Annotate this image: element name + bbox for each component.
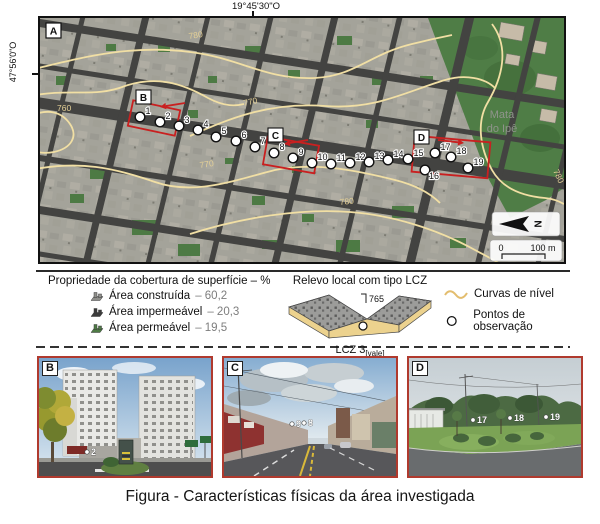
- observation-point: [383, 155, 393, 165]
- legend-relief-title: Relevo local com tipo LCZ: [281, 275, 439, 287]
- observation-point: [135, 112, 145, 122]
- observation-point-label: 14: [394, 149, 404, 159]
- photo-point: [544, 415, 548, 419]
- photo-d: 171819 D: [407, 356, 583, 478]
- legend-item-value: – 19,5: [195, 322, 227, 335]
- elevation-tick: [361, 294, 366, 303]
- observation-point-label: 10: [318, 152, 328, 162]
- legend-points-row: Pontos de observação: [444, 309, 584, 333]
- observation-point: [345, 158, 355, 168]
- photo-point: [471, 418, 475, 422]
- legend-contour-label: Curvas de nível: [474, 288, 554, 300]
- area-block-icon: [90, 323, 104, 334]
- contour-label: 780: [339, 196, 354, 207]
- observation-point: [231, 136, 241, 146]
- observation-point: [288, 153, 298, 163]
- photo-point-label: 9: [296, 419, 301, 429]
- photo-point: [85, 450, 89, 454]
- legend-surface-cover: Propriedade da cobertura de superfície –…: [40, 275, 286, 335]
- legend-item-label: Área impermeável: [109, 306, 202, 319]
- legend-symbols: Curvas de nível Pontos de observação: [444, 288, 584, 342]
- observation-point: [250, 142, 260, 152]
- photo-point-label: 17: [477, 415, 487, 425]
- photo-b-chip: B: [42, 361, 58, 376]
- legend-item-2: Área permeável– 19,5: [90, 322, 286, 335]
- inset-box-letter: B: [140, 93, 147, 104]
- observation-point: [193, 125, 203, 135]
- inset-box-letter: C: [272, 131, 279, 142]
- observation-point-icon: [444, 315, 467, 327]
- legend-relief: Relevo local com tipo LCZ 765 LCZ 3[vale…: [281, 275, 439, 358]
- photo-point: [508, 416, 512, 420]
- forest-label-line1: Mata: [490, 109, 515, 121]
- observation-point-label: 8: [280, 142, 285, 152]
- photo-point: [302, 421, 306, 425]
- observation-point: [446, 152, 456, 162]
- coordinate-left-label: 47°56'0"O: [8, 42, 18, 83]
- observation-point-label: 5: [222, 126, 227, 136]
- scale-start: 0: [498, 243, 503, 253]
- photo-point-label: 19: [550, 412, 560, 422]
- observation-point: [174, 121, 184, 131]
- observation-point-label: 15: [414, 148, 424, 158]
- observation-point-label: 1: [146, 106, 151, 116]
- observation-point-label: 6: [242, 130, 247, 140]
- north-arrow: N: [492, 212, 560, 236]
- photo-b: 2 B: [37, 356, 213, 478]
- observation-point: [155, 117, 165, 127]
- observation-point: [430, 148, 440, 158]
- building-left: [409, 408, 445, 430]
- photo-c-scene: 98: [224, 358, 396, 476]
- north-letter: N: [531, 220, 542, 227]
- observation-point: [364, 157, 374, 167]
- observation-point-label: 7: [261, 136, 266, 146]
- observation-point-label: 2: [166, 111, 171, 121]
- scale-end: 100 m: [530, 243, 555, 253]
- observation-point-label: 4: [204, 119, 209, 129]
- scale-bar: 0 100 m: [490, 240, 562, 261]
- observation-point: [403, 154, 413, 164]
- photo-point-label: 2: [91, 447, 96, 457]
- photo-d-scene: 171819: [409, 358, 581, 476]
- inset-box-letter: D: [418, 133, 425, 144]
- contour-label: 770: [199, 158, 215, 170]
- satellite-map: 780770760770780780 Mata do Ipê BCD 12345…: [40, 18, 564, 262]
- photo-d-chip: D: [412, 361, 428, 376]
- observation-point: [463, 163, 473, 173]
- legend-contour-row: Curvas de nível: [444, 288, 584, 300]
- legend-item-label: Área construída: [109, 290, 190, 303]
- legend-surface-title: Propriedade da cobertura de superfície –…: [40, 275, 286, 287]
- area-block-icon: [90, 291, 104, 302]
- legend-item-label: Área permeável: [109, 322, 190, 335]
- separator-solid: [36, 270, 570, 272]
- photo-c-chip: C: [227, 361, 243, 376]
- photo-point: [290, 422, 294, 426]
- photo-point-label: 18: [514, 413, 524, 423]
- map-panel: 780770760770780780 Mata do Ipê BCD 12345…: [38, 16, 566, 264]
- legend-points-label: Pontos de observação: [473, 309, 584, 333]
- observation-point-label: 18: [457, 146, 467, 156]
- observation-point-label: 9: [299, 147, 304, 157]
- observation-point: [326, 159, 336, 169]
- legend-item-value: – 20,3: [207, 306, 239, 319]
- observation-point: [307, 158, 317, 168]
- legend-item-1: Área impermeável– 20,3: [90, 306, 286, 319]
- coordinate-top-label: 19°45'30"O: [232, 1, 280, 12]
- legend-item-0: Área construída– 60,2: [90, 290, 286, 303]
- contour-label: 780: [188, 29, 204, 41]
- contour-label: 760: [57, 103, 71, 113]
- observation-point-label: 3: [185, 115, 190, 125]
- area-block-icon: [90, 307, 104, 318]
- photo-point-label: 8: [308, 418, 313, 428]
- observation-point-label: 19: [474, 157, 484, 167]
- panel-label-chip: A: [46, 23, 61, 38]
- observation-point-label: 11: [337, 153, 346, 163]
- observation-point-label: 16: [429, 171, 439, 181]
- photo-c: 98 C: [222, 356, 398, 478]
- contour-line-icon: [444, 289, 468, 299]
- observation-point-label: 17: [441, 142, 451, 152]
- legend-surface-items: Área construída– 60,2Área impermeável– 2…: [40, 290, 286, 335]
- observation-point: [211, 132, 221, 142]
- valley-point-icon: [359, 322, 367, 330]
- figure-caption: Figura - Características físicas da área…: [0, 488, 600, 506]
- photo-b-scene: 2: [39, 358, 211, 476]
- lcz-valley-diagram: 765: [285, 289, 435, 339]
- forest-label-line2: do Ipê: [487, 123, 518, 135]
- svg-text:A: A: [50, 26, 58, 38]
- observation-point: [269, 148, 279, 158]
- lcz-class: LCZ 3: [335, 344, 365, 356]
- elevation-value: 765: [369, 294, 384, 304]
- legend-item-value: – 60,2: [195, 290, 227, 303]
